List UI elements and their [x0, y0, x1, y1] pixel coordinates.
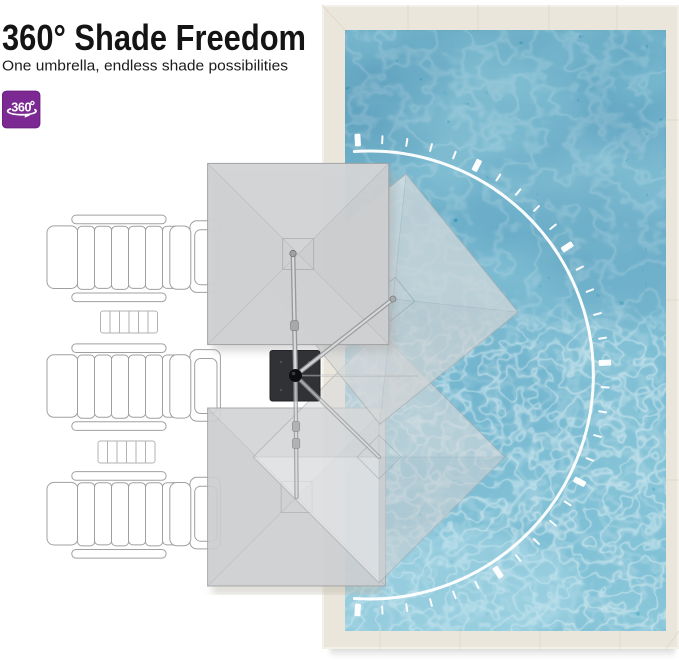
svg-text:One umbrella, endless shade po: One umbrella, endless shade possibilitie… [2, 58, 288, 75]
svg-text:360° Shade Freedom: 360° Shade Freedom [2, 17, 306, 58]
svg-text:360: 360 [11, 101, 31, 115]
